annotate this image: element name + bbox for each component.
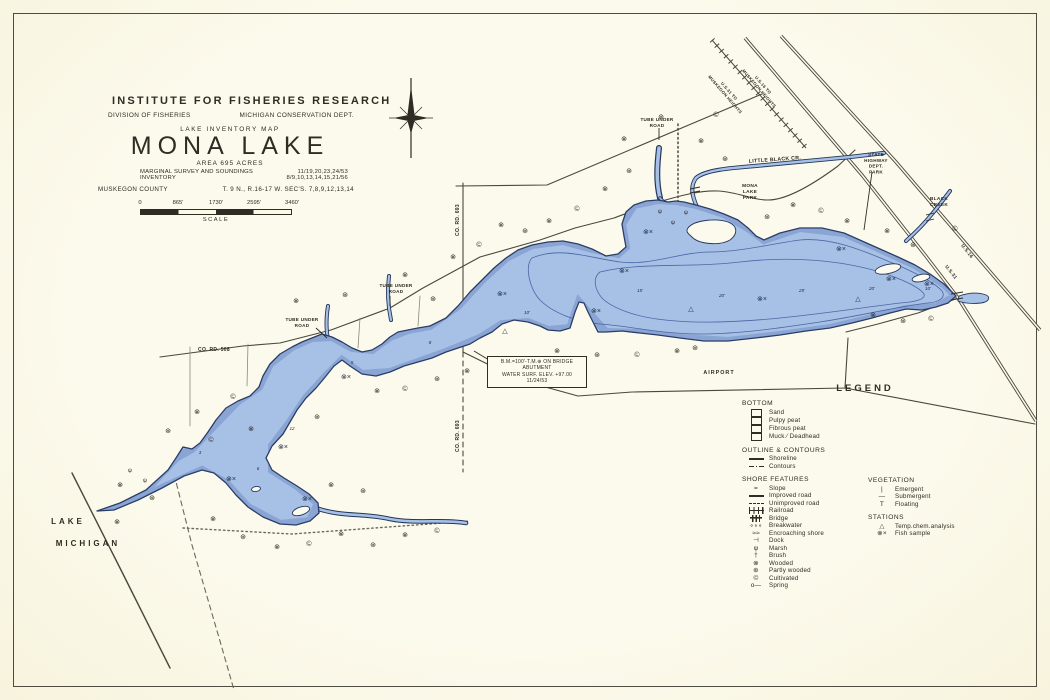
legend-item-label: Pulpy peat (769, 417, 800, 425)
partly-wooded-symbol: ⊛ (594, 352, 600, 359)
partly-wooded-symbol: ⊛ (626, 168, 632, 175)
fish-symbol: ⊗× (619, 268, 629, 275)
legend-section: VEGETATION|Emergent—SubmergentTFloating (868, 477, 1000, 508)
scale-tick: 3460' (285, 200, 299, 206)
temp-icon: △ (873, 523, 891, 530)
wooded-symbol: ⊗ (450, 254, 456, 261)
wooded-symbol: ⊗ (698, 138, 704, 145)
submergent-icon: — (873, 493, 891, 500)
county-row: MUSKEGON COUNTY T. 9 N., R.16-17 W. SEC'… (98, 186, 354, 193)
cultivated-symbol: © (306, 540, 312, 548)
legend-item-label: Railroad (769, 507, 794, 515)
partly-wooded-symbol: ⊛ (522, 228, 528, 235)
depth-label: 10' (524, 310, 530, 315)
legend-item: ⊣Dock (742, 537, 868, 545)
wooded-symbol: ⊗ (621, 136, 627, 143)
benchmark-note: B.M.=100'-T.M.⊕ ON BRIDGEABUTMENTWATER S… (487, 356, 587, 388)
legend-item-label: Sand (769, 409, 784, 417)
legend-item-label: Wooded (769, 560, 793, 568)
legend-section: STATIONS△Temp.chem.analysis⊗×Fish sample (868, 514, 1000, 538)
legend-item-label: Unimproved road (769, 500, 819, 508)
bridge-icon (747, 515, 765, 522)
partly-wooded-icon: ⊛ (747, 567, 765, 574)
partly-wooded-symbol: ⊛ (722, 156, 728, 163)
map-label: CO. RD. 508 (198, 347, 230, 353)
institute-title: INSTITUTE FOR FISHERIES RESEARCH (112, 95, 348, 107)
brush-icon: † (747, 552, 765, 559)
depth-label: 8 (429, 340, 432, 345)
wooded-symbol: ⊗ (274, 544, 280, 551)
legend-item-label: Fibrous peat (769, 425, 806, 433)
scale-bar-graphic (140, 209, 292, 215)
map-label: U.S.31 TOMUSKEGON HEIGHTS (707, 71, 747, 115)
fish-symbol: ⊗× (226, 476, 236, 483)
wooded-symbol: ⊗ (114, 519, 120, 526)
cultivated-symbol: © (818, 207, 824, 215)
wooded-icon: ⊗ (747, 560, 765, 567)
scale-ticks: 0865'1730'2595'3460' (140, 200, 292, 208)
dept-label: MICHIGAN CONSERVATION DEPT. (240, 112, 354, 119)
railroad-icon (747, 507, 765, 514)
cultivated-symbol: © (574, 205, 580, 213)
legend-item: ©Cultivated (742, 575, 868, 583)
wooded-symbol: ⊗ (870, 312, 876, 319)
legend-item: ⊛Partly wooded (742, 567, 868, 575)
legend-item: Fibrous peat (742, 425, 868, 433)
depth-label: 20' (718, 293, 725, 298)
fish-symbol: ⊗× (341, 374, 351, 381)
wooded-symbol: ⊗ (338, 531, 344, 538)
depth-label: 10' (925, 286, 931, 291)
depth-label: 3 (199, 450, 202, 455)
legend-item-label: Emergent (895, 486, 923, 494)
map-label: U.S.31 (943, 264, 958, 281)
partly-wooded-symbol: ⊛ (149, 495, 155, 502)
legend-section-title: BOTTOM (742, 400, 868, 407)
legend-title: LEGEND (820, 383, 910, 394)
legend-item-label: Floating (895, 501, 919, 509)
map-label: CO. RD. 693 (455, 204, 461, 236)
partly-wooded-symbol: ⊛ (430, 296, 436, 303)
map-label: TUBE UNDERROAD (640, 117, 673, 128)
cultivated-symbol: © (476, 241, 482, 249)
division-label: DIVISION OF FISHERIES (108, 112, 191, 119)
unimproved-road-icon (747, 503, 765, 504)
legend-item-label: Cultivated (769, 575, 799, 583)
wooded-symbol: ⊗ (790, 202, 796, 209)
legend-section: SHORE FEATURES=SlopeImproved roadUnimpro… (742, 476, 868, 590)
scale-tick: 0 (138, 200, 141, 206)
box-icon (747, 409, 765, 417)
depth-label: 20' (868, 286, 875, 291)
legend-item: Pulpy peat (742, 417, 868, 425)
wooded-symbol: ⊗ (248, 426, 254, 433)
cultivated-symbol: © (713, 111, 719, 119)
partly-wooded-symbol: ⊛ (360, 488, 366, 495)
partly-wooded-symbol: ⊛ (165, 428, 171, 435)
map-label: STATEHIGHWAYDEPT.PARK (864, 152, 888, 174)
cultivated-symbol: © (928, 315, 934, 323)
wooded-symbol: ⊗ (844, 218, 850, 225)
wooded-symbol: ⊗ (210, 516, 216, 523)
spring-icon: o— (747, 582, 765, 589)
lake-name-title: MONA LAKE (112, 132, 348, 161)
partly-wooded-symbol: ⊛ (314, 414, 320, 421)
cultivated-symbol: © (634, 351, 640, 359)
wooded-symbol: ⊗ (464, 368, 470, 375)
partly-wooded-symbol: ⊛ (910, 242, 916, 249)
legend-section: OUTLINE & CONTOURSShorelineContours (742, 447, 868, 471)
legend-item: —Submergent (868, 493, 1000, 501)
legend-item-label: Slope (769, 485, 786, 493)
legend-item: Railroad (742, 507, 868, 515)
inventory-label: INVENTORY (140, 175, 176, 181)
fish-symbol: ⊗× (278, 444, 288, 451)
cultivated-symbol: © (208, 436, 214, 444)
township-label: T. 9 N., R.16-17 W. SEC'S. 7,8,9,12,13,1… (223, 186, 354, 193)
box-icon (747, 417, 765, 425)
survey-block: MARGINAL SURVEY AND SOUNDINGS 11/19,20,2… (140, 169, 348, 181)
map-label: TUBE UNDERROAD (379, 283, 412, 294)
scale-tick: 1730' (209, 200, 223, 206)
partly-wooded-symbol: ⊛ (434, 376, 440, 383)
legend-item-label: Muck ⁄ Deadhead (769, 433, 820, 441)
marsh-icon: ψ (747, 545, 765, 552)
legend-item: Muck ⁄ Deadhead (742, 433, 868, 441)
north-arrow (389, 78, 433, 158)
legend-item-label: Spring (769, 582, 788, 590)
wooded-symbol: ⊗ (674, 348, 680, 355)
slope-icon: = (747, 485, 765, 492)
depth-label: 15' (637, 288, 643, 293)
department-row: DIVISION OF FISHERIES MICHIGAN CONSERVAT… (108, 112, 354, 119)
partly-wooded-symbol: ⊛ (764, 214, 770, 221)
legend-item: △Temp.chem.analysis (868, 523, 1000, 531)
legend-item-label: Improved road (769, 492, 812, 500)
legend-item: o—Spring (742, 582, 868, 590)
depth-label: 6 (257, 466, 260, 471)
temp-symbol: △ (688, 306, 694, 313)
legend-item: Unimproved road (742, 500, 868, 508)
fish-symbol: ⊗× (757, 296, 767, 303)
encroaching-icon: ≈≈ (747, 530, 765, 537)
map-sheet: ⊗⊛⊗⊛⊗©⊗⊛⊗⊛⊗©⊗⊛⊗©⊗⊛⊗⊛⊗⊛©⊛⊗©⊗⊗⊛©⊗⊛©⊗⊛©⊗⊛⊗©… (0, 0, 1050, 700)
scale-label: SCALE (140, 217, 292, 223)
depth-label: 5 (351, 360, 354, 365)
cultivated-symbol: © (230, 393, 236, 401)
wooded-symbol: ⊗ (498, 222, 504, 229)
legend-section-title: OUTLINE & CONTOURS (742, 447, 868, 454)
legend-item-label: Shoreline (769, 455, 797, 463)
legend-item-label: Brush (769, 552, 786, 560)
cultivated-symbol: © (952, 225, 958, 233)
fish-symbol: ⊗× (643, 229, 653, 236)
fish-symbol: ⊗× (591, 308, 601, 315)
partly-wooded-symbol: ⊛ (342, 292, 348, 299)
emergent-icon: | (873, 486, 891, 493)
cultivated-symbol: © (402, 385, 408, 393)
map-label: MICHIGAN (56, 539, 120, 548)
legend-item: ⊗Wooded (742, 560, 868, 568)
highway-us31 (745, 38, 1036, 421)
legend-item-label: Temp.chem.analysis (895, 523, 955, 531)
legend-item-label: Marsh (769, 545, 787, 553)
breakwater-icon: ∘∘∘ (747, 522, 765, 529)
shoreline-icon (747, 458, 765, 460)
road-south-dashed (172, 466, 234, 690)
wooded-symbol: ⊗ (328, 482, 334, 489)
area-label: AREA 695 ACRES (112, 160, 348, 167)
wooded-symbol: ⊗ (194, 409, 200, 416)
partly-wooded-symbol: ⊛ (370, 542, 376, 549)
dock-icon: ⊣ (747, 537, 765, 544)
marsh-symbol: ψ (658, 209, 662, 215)
improved-road-icon (747, 495, 765, 497)
legend-item-label: Fish sample (895, 530, 931, 538)
map-label: CO. RD. 693 (455, 420, 461, 452)
legend-item: ψMarsh (742, 545, 868, 553)
map-label: LAKE (51, 517, 85, 526)
wooded-symbol: ⊗ (884, 228, 890, 235)
cultivated-symbol: © (434, 527, 440, 535)
map-label: TUBE UNDERROAD (285, 317, 318, 328)
legend-section-title: VEGETATION (868, 477, 1000, 484)
wooded-symbol: ⊗ (293, 298, 299, 305)
wooded-symbol: ⊗ (546, 218, 552, 225)
temp-symbol: △ (855, 296, 861, 303)
wooded-symbol: ⊗ (402, 272, 408, 279)
legend-section-title: STATIONS (868, 514, 1000, 521)
legend-item: †Brush (742, 552, 868, 560)
partly-wooded-symbol: ⊛ (240, 534, 246, 541)
legend-item-label: Dock (769, 537, 784, 545)
legend-item: TFloating (868, 501, 1000, 509)
depth-label: 12 (289, 426, 295, 431)
county-label: MUSKEGON COUNTY (98, 186, 168, 193)
scale-bar: 0865'1730'2595'3460' SCALE (140, 200, 292, 226)
legend-item-label: Submergent (895, 493, 931, 501)
inventory-dates: 8/9,10,13,14,15,21/56 (286, 175, 348, 181)
wooded-symbol: ⊗ (402, 532, 408, 539)
contours-icon (747, 466, 765, 467)
map-label: AIRPORT (703, 370, 734, 376)
legend-column-right: VEGETATION|Emergent—SubmergentTFloatingS… (868, 477, 1000, 544)
legend-item: Improved road (742, 492, 868, 500)
partly-wooded-symbol: ⊛ (692, 345, 698, 352)
legend-item-label: Encroaching shore (769, 530, 824, 538)
legend-item-label: Bridge (769, 515, 788, 523)
temp-symbol: △ (502, 328, 508, 335)
marsh-symbol: ψ (143, 478, 147, 484)
legend-item: Contours (742, 463, 868, 471)
partly-wooded-symbol: ⊛ (900, 318, 906, 325)
legend-section-title: SHORE FEATURES (742, 476, 868, 483)
legend-section: BOTTOMSandPulpy peatFibrous peatMuck ⁄ D… (742, 400, 868, 441)
floating-icon: T (873, 501, 891, 508)
fish-symbol: ⊗× (302, 496, 312, 503)
wooded-symbol: ⊗ (554, 348, 560, 355)
legend-item: ∘∘∘Breakwater (742, 522, 868, 530)
wooded-symbol: ⊗ (117, 482, 123, 489)
fish-symbol: ⊗× (497, 291, 507, 298)
wooded-symbol: ⊗ (602, 186, 608, 193)
scale-tick: 865' (173, 200, 184, 206)
fish-icon: ⊗× (873, 530, 891, 537)
legend-item-label: Breakwater (769, 522, 802, 530)
legend-item: Sand (742, 409, 868, 417)
fish-symbol: ⊗× (836, 246, 846, 253)
cultivated-icon: © (747, 575, 765, 582)
legend-item: ⊗×Fish sample (868, 530, 1000, 538)
legend-item: Shoreline (742, 455, 868, 463)
marsh-symbol: ψ (671, 220, 675, 226)
legend-item: ≈≈Encroaching shore (742, 530, 868, 538)
legend-item: Bridge (742, 515, 868, 523)
legend-column-left: BOTTOMSandPulpy peatFibrous peatMuck ⁄ D… (742, 400, 868, 596)
box-icon (747, 433, 765, 441)
wooded-symbol: ⊗ (374, 388, 380, 395)
marsh-symbol: ψ (128, 468, 132, 474)
box-icon (747, 425, 765, 433)
scale-tick: 2595' (247, 200, 261, 206)
legend-item-label: Partly wooded (769, 567, 811, 575)
legend-item: |Emergent (868, 486, 1000, 494)
marsh-symbol: ψ (684, 210, 688, 216)
benchmark-note-line: 11/24/53 (489, 378, 585, 384)
legend-item-label: Contours (769, 463, 796, 471)
map-label: MONALAKEPARK (742, 183, 758, 201)
fish-symbol: ⊗× (886, 276, 896, 283)
legend-item: =Slope (742, 485, 868, 493)
depth-label: 25' (798, 288, 805, 293)
